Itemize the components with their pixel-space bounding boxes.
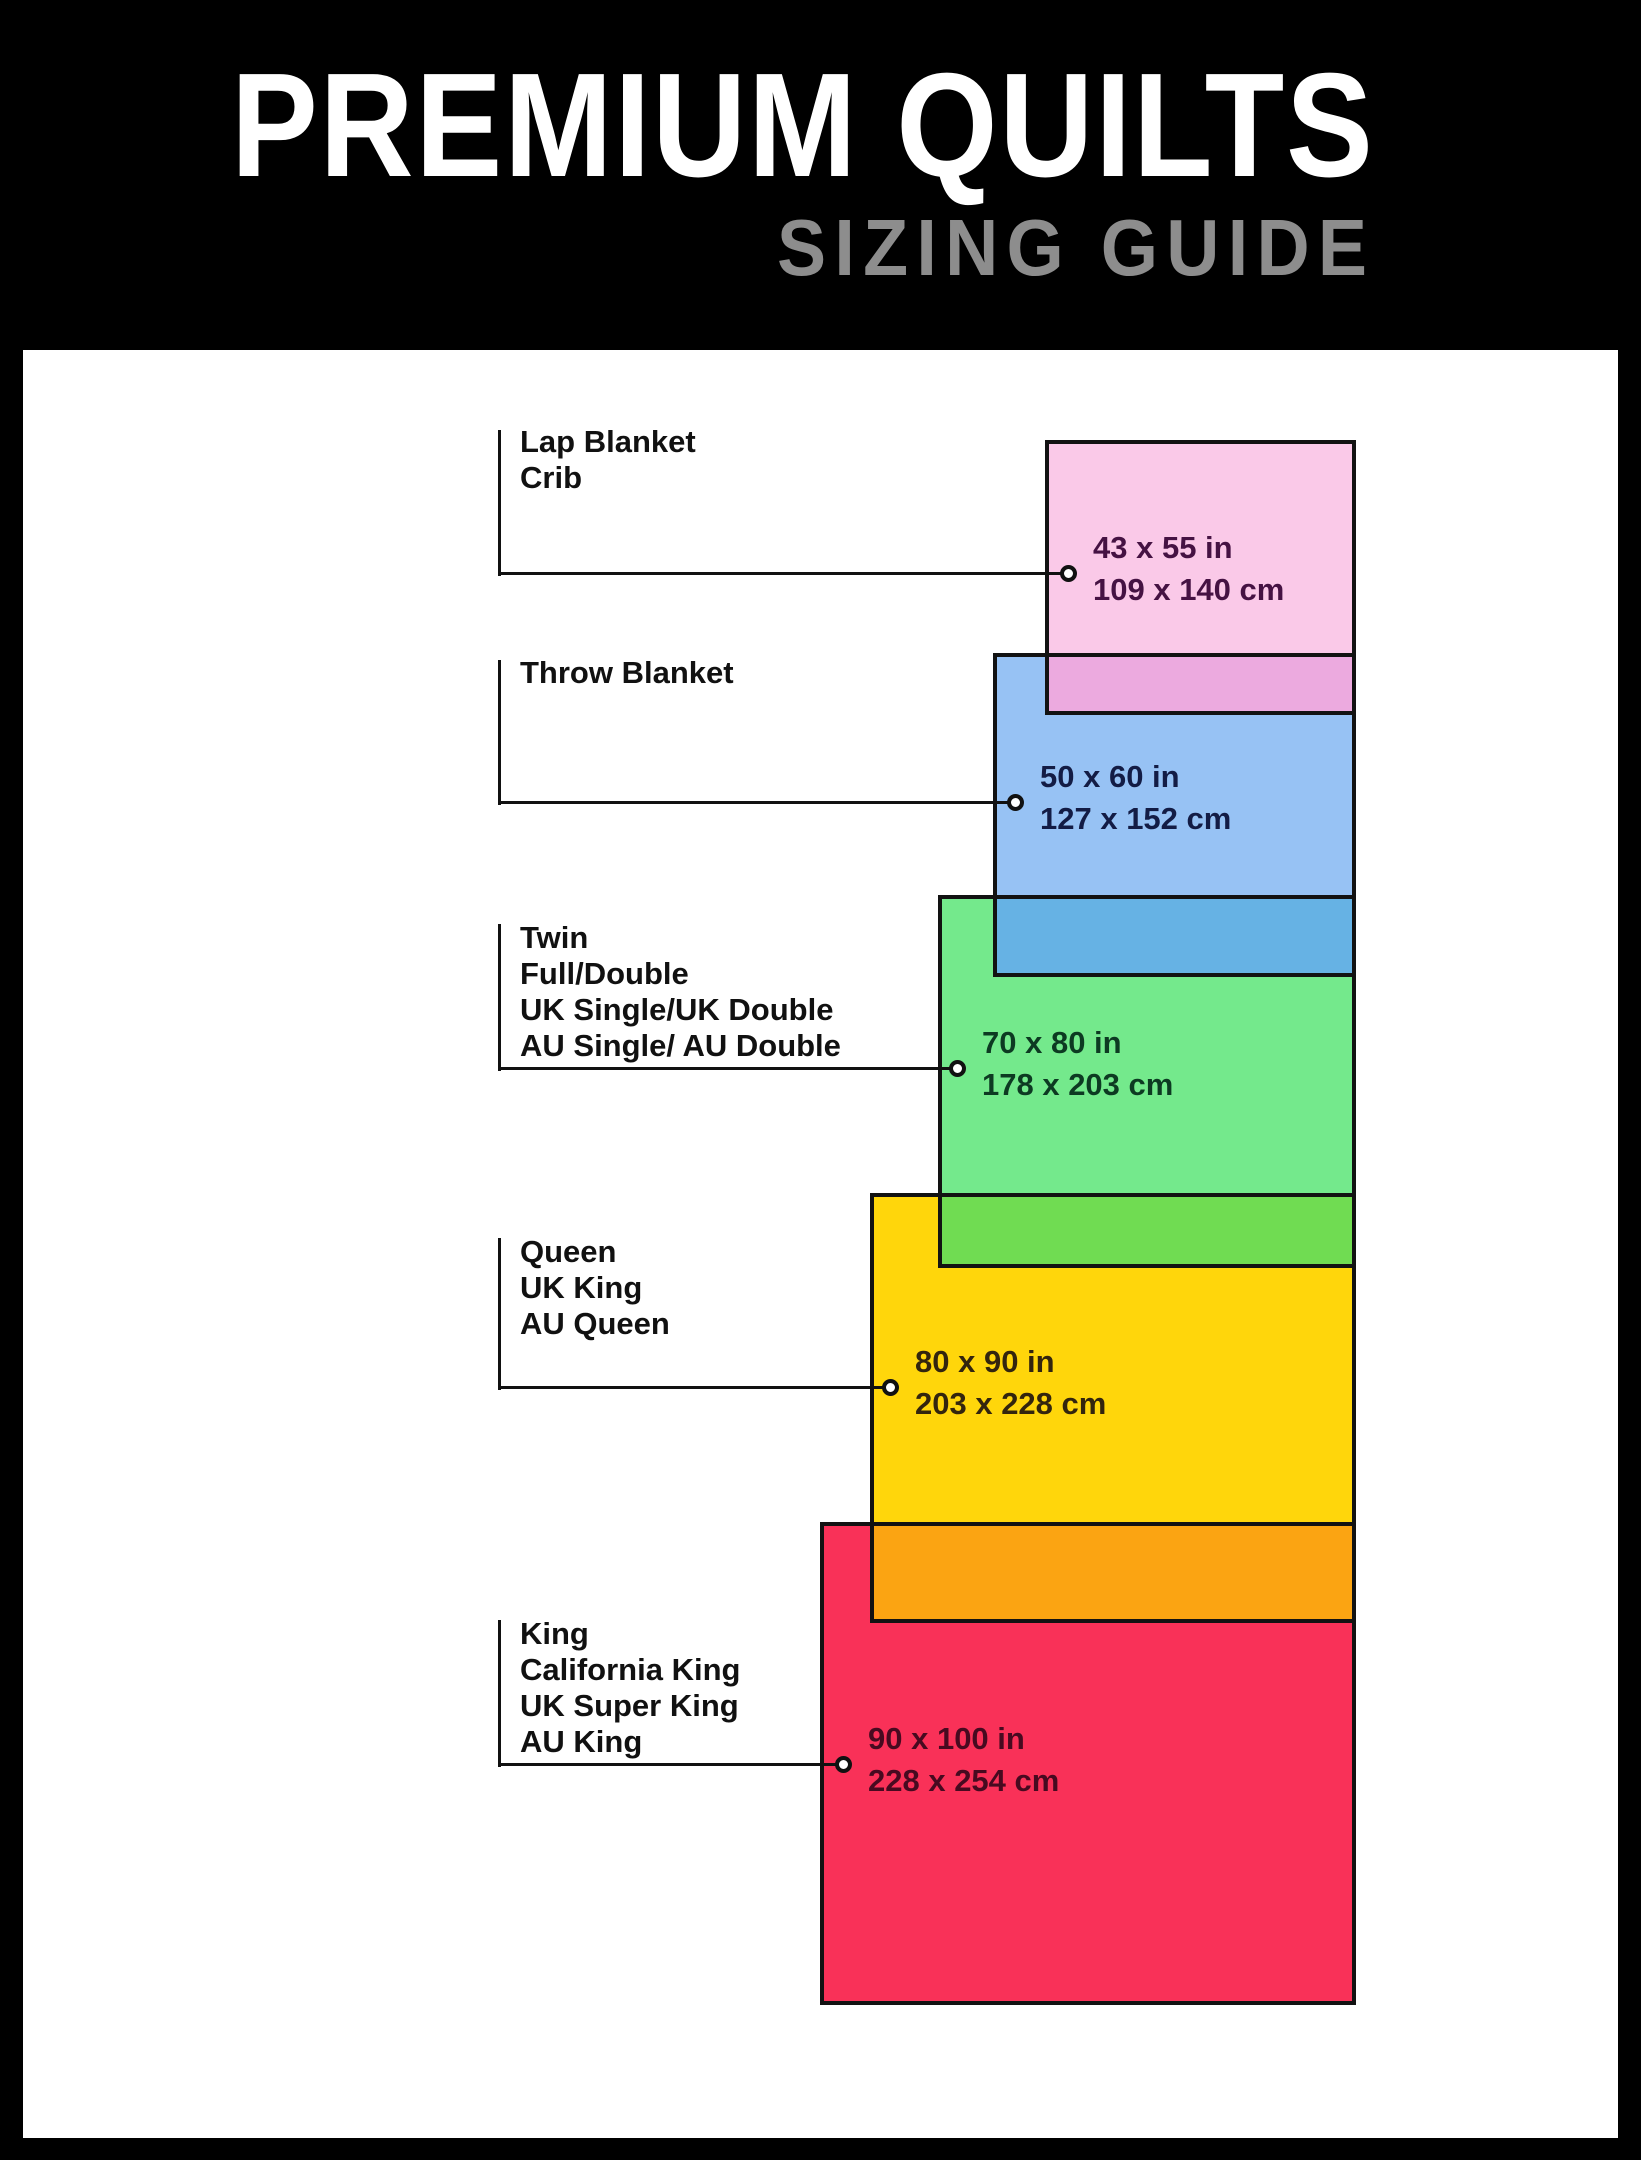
size-dimensions-twin-full: 70 x 80 in178 x 203 cm <box>982 1022 1173 1106</box>
leader-vline-twin-full <box>498 924 501 1071</box>
dimension-inches: 43 x 55 in <box>1093 527 1284 569</box>
size-label-line: UK King <box>520 1270 670 1306</box>
leader-dot-twin-full <box>949 1060 966 1077</box>
size-label-throw: Throw Blanket <box>520 655 734 691</box>
leader-hline-king <box>498 1763 836 1766</box>
leader-dot-queen <box>882 1379 899 1396</box>
leader-hline-twin-full <box>498 1067 950 1070</box>
leader-hline-queen <box>498 1386 883 1389</box>
size-label-line: Crib <box>520 460 696 496</box>
dimension-inches: 80 x 90 in <box>915 1341 1106 1383</box>
size-label-line: King <box>520 1616 740 1652</box>
leader-vline-king <box>498 1620 501 1767</box>
dimension-inches: 90 x 100 in <box>868 1718 1059 1760</box>
leader-hline-throw <box>498 801 1008 804</box>
leader-dot-throw <box>1007 794 1024 811</box>
size-label-line: Throw Blanket <box>520 655 734 691</box>
size-label-line: AU Single/ AU Double <box>520 1028 841 1064</box>
size-label-lap-crib: Lap BlanketCrib <box>520 424 696 496</box>
dimension-inches: 50 x 60 in <box>1040 756 1231 798</box>
dimension-cm: 178 x 203 cm <box>982 1064 1173 1106</box>
size-dimensions-king: 90 x 100 in228 x 254 cm <box>868 1718 1059 1802</box>
size-label-line: UK Super King <box>520 1688 740 1724</box>
dimension-cm: 203 x 228 cm <box>915 1383 1106 1425</box>
leader-dot-lap-crib <box>1060 565 1077 582</box>
leader-vline-lap-crib <box>498 430 501 576</box>
dimension-cm: 127 x 152 cm <box>1040 798 1231 840</box>
size-diagram: Lap BlanketCrib43 x 55 in109 x 140 cmThr… <box>0 0 1641 2160</box>
leader-dot-king <box>835 1756 852 1773</box>
size-label-line: California King <box>520 1652 740 1688</box>
size-dimensions-queen: 80 x 90 in203 x 228 cm <box>915 1341 1106 1425</box>
leader-hline-lap-crib <box>498 572 1061 575</box>
size-label-king: KingCalifornia KingUK Super KingAU King <box>520 1616 740 1760</box>
size-label-queen: QueenUK KingAU Queen <box>520 1234 670 1342</box>
size-label-line: AU King <box>520 1724 740 1760</box>
leader-vline-queen <box>498 1238 501 1390</box>
size-label-line: Lap Blanket <box>520 424 696 460</box>
size-label-line: UK Single/UK Double <box>520 992 841 1028</box>
size-label-line: Twin <box>520 920 841 956</box>
size-dimensions-throw: 50 x 60 in127 x 152 cm <box>1040 756 1231 840</box>
dimension-inches: 70 x 80 in <box>982 1022 1173 1064</box>
page-frame: PREMIUM QUILTS SIZING GUIDE Lap BlanketC… <box>0 0 1641 2160</box>
size-label-twin-full: TwinFull/DoubleUK Single/UK DoubleAU Sin… <box>520 920 841 1064</box>
leader-vline-throw <box>498 660 501 805</box>
dimension-cm: 109 x 140 cm <box>1093 569 1284 611</box>
size-label-line: Full/Double <box>520 956 841 992</box>
size-label-line: Queen <box>520 1234 670 1270</box>
dimension-cm: 228 x 254 cm <box>868 1760 1059 1802</box>
size-dimensions-lap-crib: 43 x 55 in109 x 140 cm <box>1093 527 1284 611</box>
size-label-line: AU Queen <box>520 1306 670 1342</box>
